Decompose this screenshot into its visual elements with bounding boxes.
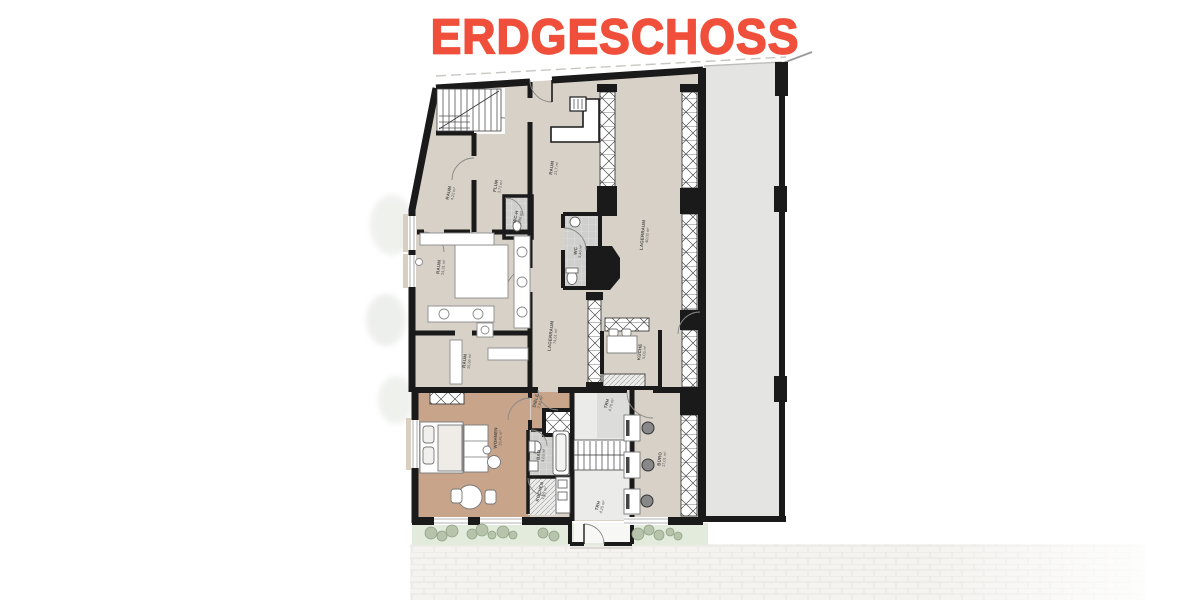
side-table bbox=[488, 456, 501, 469]
wall-cap-2 bbox=[597, 186, 617, 216]
pillar-2 bbox=[774, 186, 787, 212]
label-buero: BÜRO17,01 m² bbox=[656, 450, 667, 467]
x-panel-right-1 bbox=[682, 92, 697, 188]
label-wohnen: WOHNEN26,41 m² bbox=[493, 427, 503, 449]
pillar-3 bbox=[774, 376, 787, 402]
wall-cap-3 bbox=[586, 292, 603, 300]
stairs-main bbox=[574, 440, 630, 470]
kueche-chair-1 bbox=[609, 329, 618, 336]
chimney-block bbox=[586, 246, 620, 290]
pillow-2 bbox=[423, 447, 434, 464]
boundary-diagonal-line bbox=[783, 52, 812, 63]
duvet bbox=[438, 425, 462, 471]
wall-cap-5 bbox=[680, 84, 699, 92]
floor-plan: RAUM4,22 m² FLUR3,72 m² WC-H1,98 m² RAUM… bbox=[0, 0, 1200, 600]
wall-cap-6 bbox=[680, 188, 699, 214]
kochen-sink bbox=[558, 480, 567, 488]
dining-chair-1 bbox=[451, 489, 462, 503]
window-bottom-buero bbox=[624, 517, 668, 525]
table-large bbox=[455, 245, 508, 298]
wc-sink bbox=[570, 217, 580, 227]
wc-toilet bbox=[567, 272, 577, 285]
kueche-counter bbox=[603, 374, 645, 387]
neighbor-floor bbox=[702, 62, 782, 519]
pouf bbox=[483, 446, 491, 454]
x-panel-right-3 bbox=[682, 330, 697, 387]
paving-fade bbox=[930, 544, 1145, 600]
window-left-2 bbox=[403, 254, 416, 288]
label-kueche: KÜCHE5,06 m² bbox=[636, 343, 647, 361]
pillar-1 bbox=[775, 62, 788, 96]
window-left-3 bbox=[406, 418, 419, 470]
bad-sink bbox=[529, 461, 538, 471]
x-panel-buero bbox=[681, 415, 697, 516]
x-panel-right-2 bbox=[682, 214, 697, 310]
kueche-table bbox=[607, 336, 637, 353]
buero-furniture bbox=[624, 415, 654, 514]
vestibule-floor bbox=[574, 523, 630, 543]
outdoor-paving bbox=[410, 544, 1145, 600]
label-raum-1566: RAUM15,66 m² bbox=[461, 352, 472, 369]
kueche-chair-2 bbox=[622, 329, 631, 336]
wall-cap-1 bbox=[597, 84, 617, 92]
pillow-1 bbox=[423, 426, 434, 443]
window-bottom-1 bbox=[434, 517, 468, 525]
label-raum-217: RAUM21,7 m² bbox=[548, 160, 559, 175]
x-panel-center-top bbox=[600, 92, 615, 188]
label-raum-2431: RAUM24,31 m² bbox=[435, 258, 446, 275]
window-left-1 bbox=[403, 214, 416, 252]
window-bottom-2 bbox=[480, 517, 522, 525]
kochen-stove bbox=[558, 492, 567, 500]
dining-chair-2 bbox=[485, 490, 496, 504]
x-panel-kueche-left bbox=[588, 300, 601, 384]
stairs-upper-left bbox=[437, 89, 501, 131]
